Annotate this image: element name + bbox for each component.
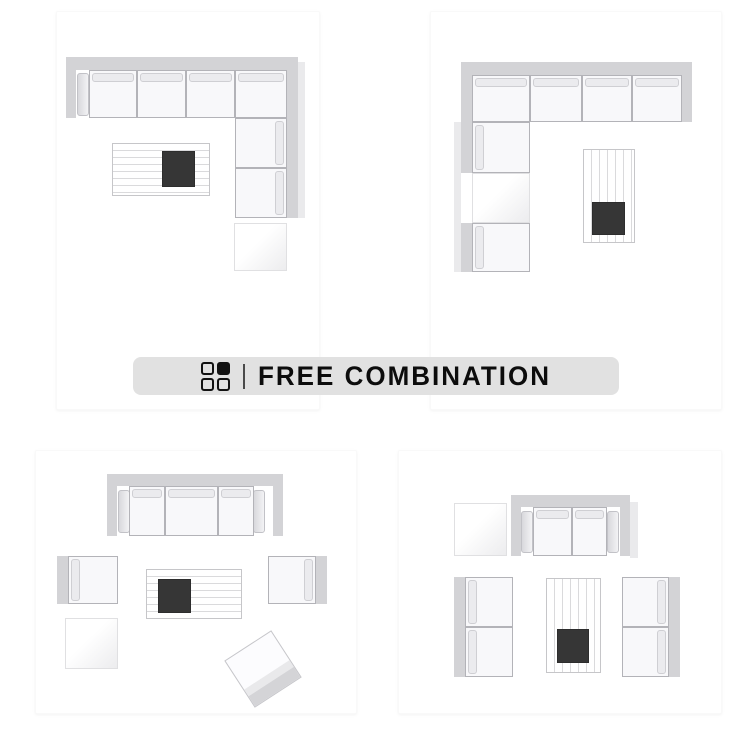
seat-cushion bbox=[622, 627, 669, 677]
seat-cushion bbox=[533, 507, 572, 556]
furniture-shadow bbox=[630, 502, 638, 558]
grid-cell bbox=[217, 378, 230, 391]
product-infographic: FREE COMBINATION bbox=[0, 0, 755, 755]
grid-cell-filled bbox=[217, 362, 230, 375]
seat-cushion bbox=[622, 577, 669, 627]
sofa-band bbox=[511, 507, 521, 556]
armrest bbox=[607, 511, 619, 553]
seat-cushion bbox=[465, 577, 513, 627]
seat-cushion bbox=[465, 627, 513, 677]
banner-divider bbox=[243, 364, 245, 389]
table-tray bbox=[557, 629, 589, 663]
sofa-band bbox=[669, 577, 680, 677]
ottoman bbox=[454, 503, 507, 556]
free-combination-banner: FREE COMBINATION bbox=[133, 357, 619, 395]
grid-2x2-icon bbox=[201, 362, 230, 391]
armrest bbox=[521, 511, 533, 553]
grid-cell bbox=[201, 362, 214, 375]
sofa-band bbox=[511, 495, 630, 507]
grid-cell bbox=[201, 378, 214, 391]
seat-cushion bbox=[572, 507, 607, 556]
banner-label: FREE COMBINATION bbox=[258, 360, 551, 392]
sofa-band bbox=[620, 507, 630, 556]
sofa-band bbox=[454, 577, 465, 677]
